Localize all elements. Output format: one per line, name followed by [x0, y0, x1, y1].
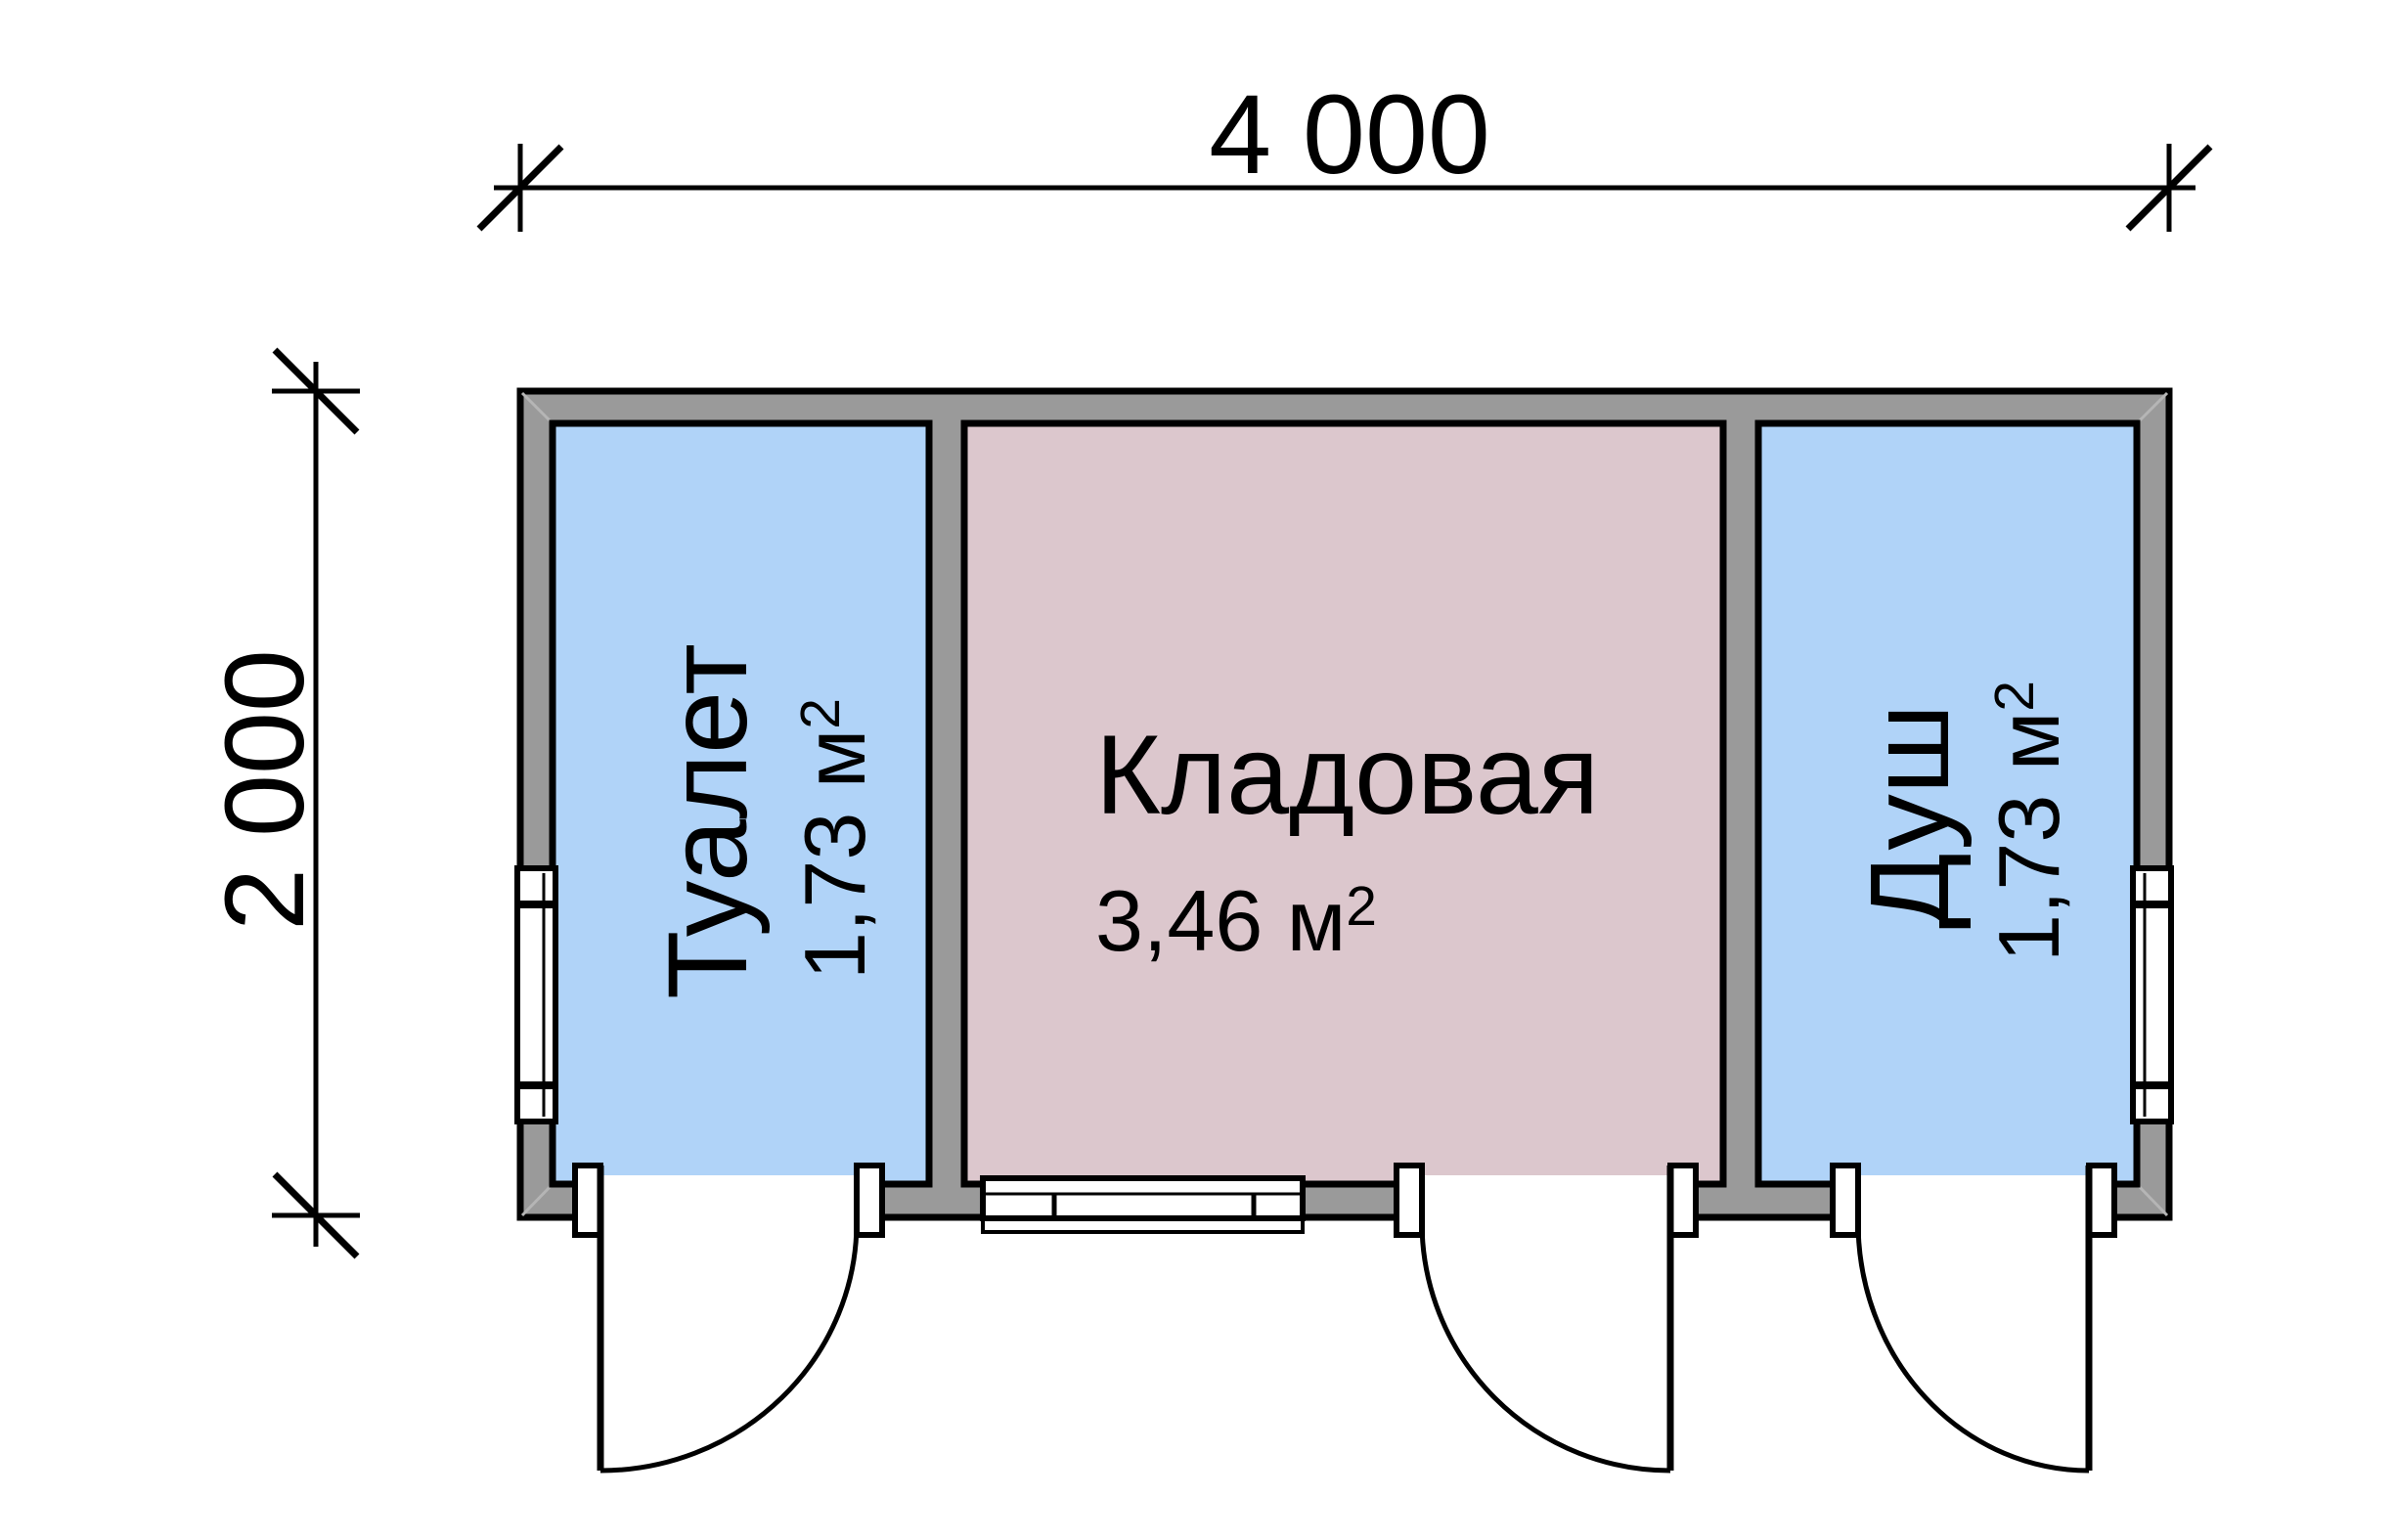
- window-right: [2133, 868, 2171, 1122]
- room-toilet-name: Туалет: [645, 643, 771, 999]
- door-storage-jamb-left: [1397, 1166, 1422, 1235]
- floor-plan-svg: 4 000 2 000 Туалет 1,73 м2 Кладовая 3,46…: [0, 0, 2395, 1540]
- dimension-depth-label: 2 000: [202, 649, 328, 931]
- door-shower-opening: [1833, 1175, 2114, 1222]
- door-toilet-jamb-right: [857, 1166, 882, 1235]
- door-storage-opening: [1397, 1175, 1696, 1222]
- room-shower-area: 1,73 м2: [1980, 681, 2077, 962]
- door-toilet-opening: [575, 1175, 882, 1222]
- door-shower-jamb-right: [2089, 1166, 2114, 1235]
- room-toilet-area: 1,73 м2: [786, 698, 883, 980]
- room-shower-name: Душ: [1847, 704, 1973, 929]
- door-storage-jamb-right: [1670, 1166, 1696, 1235]
- floor-plan-page: 4 000 2 000 Туалет 1,73 м2 Кладовая 3,46…: [0, 0, 2395, 1540]
- door-toilet-jamb-left: [575, 1166, 600, 1235]
- room-storage-name: Кладовая: [1095, 713, 1599, 838]
- window-bottom: [983, 1178, 1303, 1232]
- room-storage-area: 3,46 м2: [1095, 872, 1377, 969]
- dimension-width-label: 4 000: [1209, 72, 1490, 198]
- window-left: [517, 868, 555, 1122]
- door-shower-jamb-left: [1833, 1166, 1858, 1235]
